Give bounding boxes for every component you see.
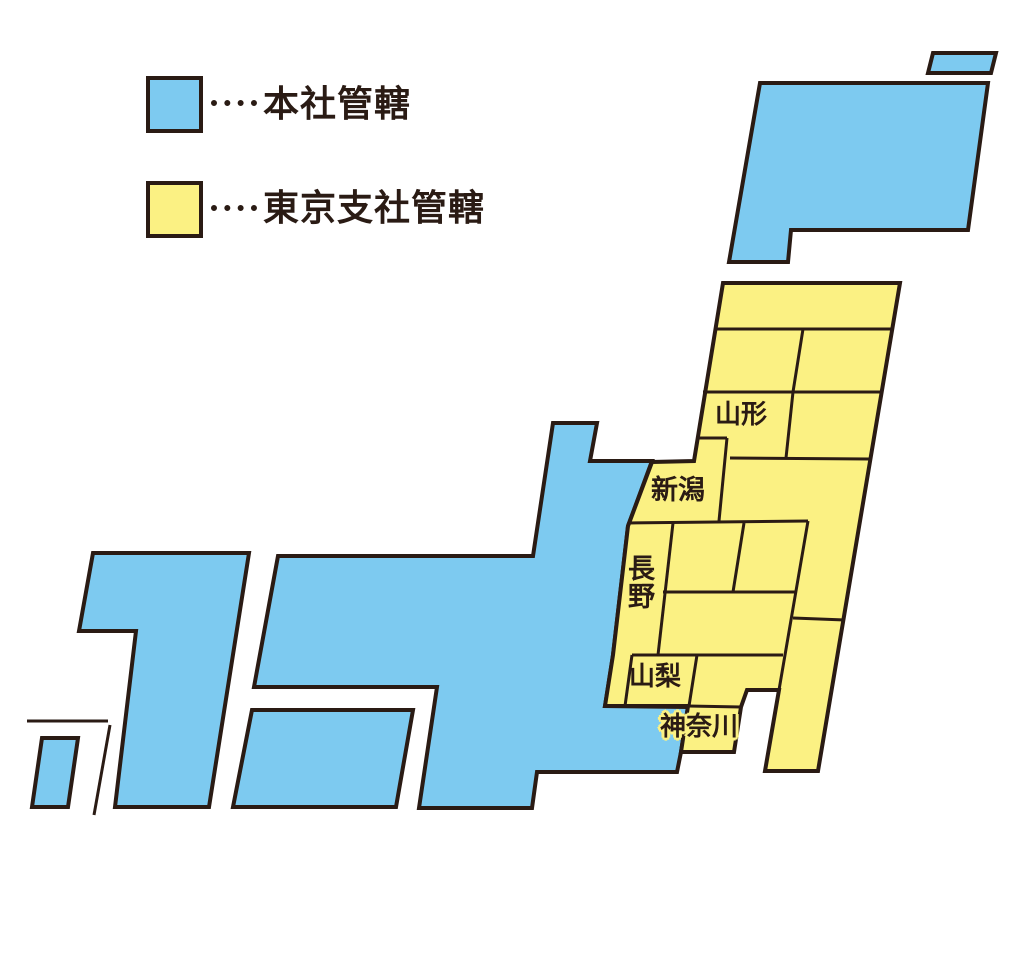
- dotted-connector: [211, 100, 257, 106]
- label-kanagawa: 神奈川: [660, 714, 738, 741]
- legend: 本社管轄 東京支社管轄: [0, 0, 1024, 260]
- label-yamagata: 山形: [715, 402, 767, 429]
- dotted-connector: [211, 205, 257, 211]
- region-tokyo-branch: [605, 283, 900, 771]
- legend-swatch-tokyo-branch: [146, 181, 203, 238]
- label-yamanashi: 山梨: [629, 664, 681, 691]
- label-nagano: 長野: [628, 556, 657, 613]
- label-niigata: 新潟: [651, 477, 705, 505]
- region-shikoku: [233, 710, 413, 807]
- japan-jurisdiction-map: 山形 新潟 長野 山梨 神奈川 本社管轄 東京支社管轄: [0, 0, 1024, 960]
- legend-label-headquarters: 本社管轄: [263, 87, 411, 123]
- region-kyushu: [79, 553, 249, 807]
- region-okinawa: [32, 738, 78, 807]
- legend-swatch-headquarters: [146, 76, 203, 133]
- legend-label-tokyo-branch: 東京支社管轄: [263, 191, 485, 227]
